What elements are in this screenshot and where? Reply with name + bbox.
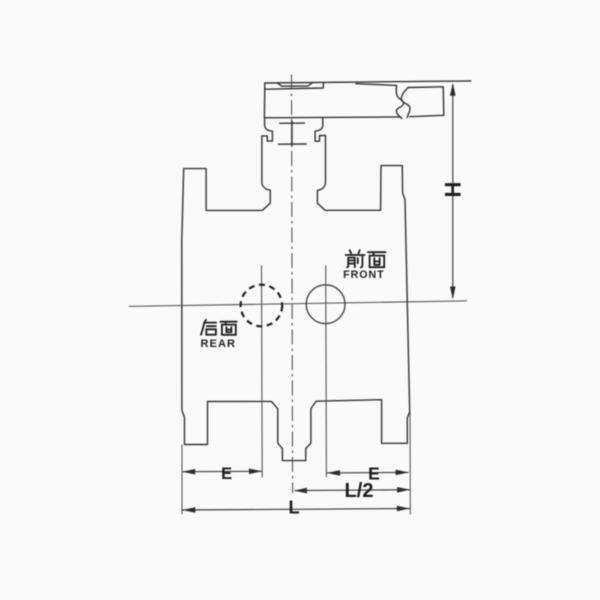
svg-text:E: E xyxy=(221,465,232,483)
svg-text:L: L xyxy=(289,497,300,517)
svg-text:REAR: REAR xyxy=(201,338,237,350)
svg-text:H: H xyxy=(440,182,465,198)
svg-text:L/2: L/2 xyxy=(345,480,374,502)
svg-text:FRONT: FRONT xyxy=(343,269,384,281)
